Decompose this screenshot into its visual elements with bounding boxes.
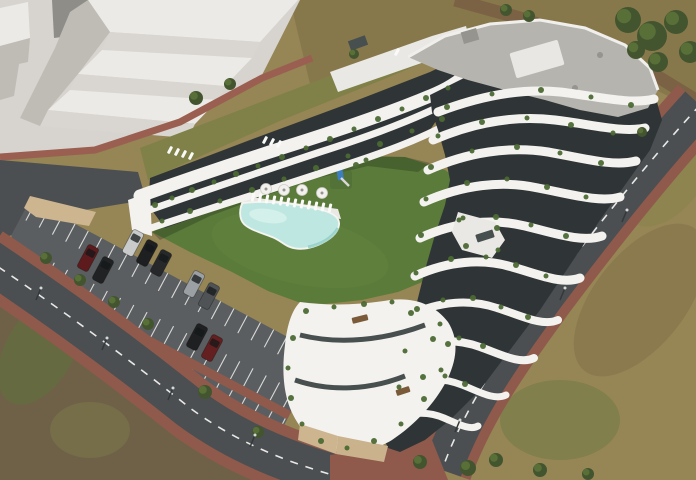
terrace-plant [286, 366, 291, 371]
table-centre [321, 192, 324, 195]
tree-highlight [143, 319, 150, 326]
terrace-plant [303, 308, 309, 314]
terrace-plant [598, 160, 604, 166]
table-centre [265, 188, 268, 191]
tree-highlight [617, 9, 631, 23]
terrace-plant [525, 314, 531, 320]
aerial-render-viewport [0, 0, 696, 480]
terrace-plant [420, 374, 426, 380]
lamp-head [40, 287, 43, 290]
tree-highlight [109, 297, 116, 304]
terrace-plant [212, 180, 217, 185]
tree-highlight [41, 253, 48, 260]
terrace-plant [529, 223, 534, 228]
terrace-plant [371, 438, 377, 444]
terrace-plant [461, 216, 466, 221]
terrace-plant [353, 162, 359, 168]
lamp-head [254, 434, 257, 437]
terrace-plant [352, 127, 357, 132]
terrace-plant [288, 395, 294, 401]
terrace-plant [346, 154, 351, 159]
terrace-plant [327, 136, 333, 142]
terrace-plant [436, 134, 441, 139]
terrace-plant [290, 335, 296, 341]
tree-highlight [490, 454, 498, 462]
tree-highlight [461, 461, 470, 470]
tree-highlight [253, 427, 260, 434]
terrace-plant [418, 232, 424, 238]
terrace-plant [375, 116, 381, 122]
terrace-plant [589, 95, 594, 100]
terrace-plant [364, 158, 369, 163]
terrace-plant [470, 295, 476, 301]
terrace-plant [397, 385, 402, 390]
terrace-plant [249, 187, 255, 193]
terrace-plant [490, 92, 495, 97]
terrace-plant [464, 180, 470, 186]
terrace-plant [563, 233, 569, 239]
terrace-plant [439, 368, 444, 373]
terrace-plant [484, 255, 489, 260]
terrace-plant [414, 306, 420, 312]
terrace-plant [479, 119, 485, 125]
tree-highlight [583, 469, 590, 476]
terrace-plant [361, 301, 367, 307]
terrace-plant [568, 122, 574, 128]
tree-highlight [190, 92, 198, 100]
tree-highlight [638, 128, 644, 134]
terrace-plant [428, 164, 434, 170]
terrace-plant [448, 256, 454, 262]
terrace-plant [499, 305, 504, 310]
terrace-plant [421, 396, 427, 402]
tree-highlight [681, 43, 693, 55]
terrace-plant [493, 214, 499, 220]
terrace-plant [300, 422, 305, 427]
terrace-plant [414, 271, 419, 276]
terrace-plant [444, 104, 450, 110]
terrace-plant [187, 208, 193, 214]
terrace-plant [558, 151, 563, 156]
table-centre [301, 189, 304, 192]
table-centre [283, 189, 286, 192]
terrace-plant [463, 243, 469, 249]
terrace-plant [446, 86, 451, 91]
tree-highlight [199, 386, 207, 394]
terrace-plant [332, 305, 337, 310]
terrace-plant [390, 300, 395, 305]
terrace-plant [457, 336, 462, 341]
terrace-plant [445, 341, 451, 347]
terrace-plant [218, 199, 223, 204]
terrace-plant [279, 154, 285, 160]
terrace-plant [443, 374, 448, 379]
terrace-plant [160, 219, 165, 224]
terrace-plant [505, 177, 510, 182]
tree-highlight [414, 456, 422, 464]
terrace-plant [430, 336, 436, 342]
terrace-plant [233, 171, 239, 177]
terrace-plant [584, 195, 589, 200]
terrace-plant [438, 322, 443, 327]
terrace-plant [611, 131, 616, 136]
roof-vent [597, 52, 603, 58]
terrace-plant [256, 164, 261, 169]
terrace-plant [408, 310, 414, 316]
tree-highlight [534, 464, 542, 472]
terrace-plant [399, 422, 404, 427]
dirt-grass-patch [50, 402, 130, 458]
terrace-plant [400, 107, 405, 112]
terrace-plant [480, 343, 486, 349]
terrace-plant [304, 146, 309, 151]
terrace-plant [403, 349, 408, 354]
tree-highlight [350, 50, 356, 56]
terrace-plant [544, 274, 549, 279]
scrub-patch [500, 380, 620, 460]
terrace-plant [282, 177, 287, 182]
terrace-plant [439, 116, 445, 122]
terrace-plant [441, 298, 446, 303]
terrace-plant [544, 184, 550, 190]
terrace-plant [410, 129, 415, 134]
terrace-plant [424, 197, 429, 202]
terrace-plant [525, 116, 530, 121]
terrace-plant [377, 141, 383, 147]
terrace-plant [513, 262, 519, 268]
tree-highlight [75, 275, 82, 282]
terrace-plant [494, 225, 500, 231]
terrace-plant [514, 144, 520, 150]
tree-highlight [225, 79, 232, 86]
lamp-head [459, 419, 462, 422]
terrace-plant [628, 102, 634, 108]
tree-highlight [650, 54, 661, 65]
terrace-plant [318, 438, 324, 444]
tree-highlight [666, 12, 679, 25]
aerial-render [0, 0, 696, 480]
terrace-plant [470, 149, 475, 154]
terrace-plant [538, 87, 544, 93]
lamp-head [172, 387, 175, 390]
terrace-plant [345, 446, 350, 451]
terrace-plant [496, 248, 501, 253]
tree-highlight [501, 5, 508, 12]
tree-highlight [639, 23, 656, 40]
lamp-head [626, 209, 629, 212]
tree-highlight [628, 42, 638, 52]
terrace-plant [170, 196, 175, 201]
terrace-plant [423, 95, 429, 101]
lamp-head [106, 337, 109, 340]
terrace-plant [462, 381, 468, 387]
terrace-plant [189, 187, 195, 193]
terrace-plant [152, 202, 158, 208]
lamp-head [564, 287, 567, 290]
tree-highlight [524, 11, 531, 18]
terrace-plant [313, 165, 319, 171]
